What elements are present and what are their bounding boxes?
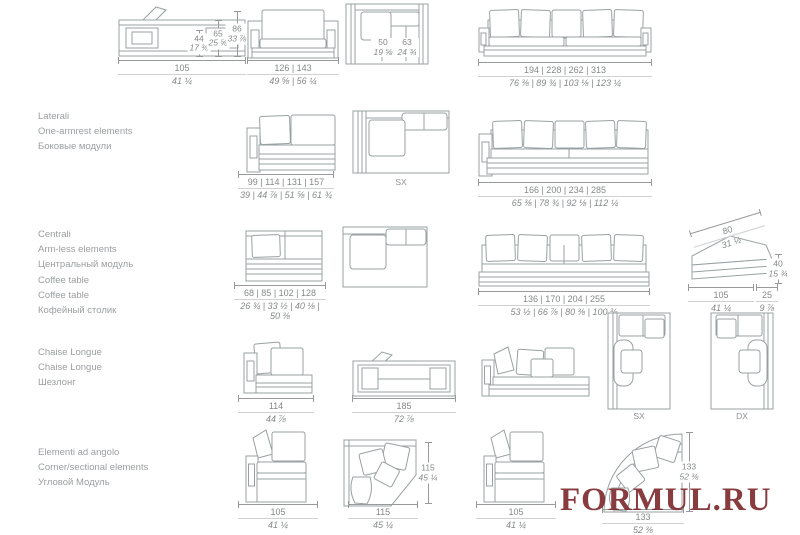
label-line: One-armrest elements (38, 124, 133, 139)
label-line: Coffee table (38, 288, 116, 303)
dim-coffee-table-depth: 25 9 ⅞ (756, 287, 778, 313)
plan-label-chaise-sx: SX (607, 411, 671, 421)
section-label-corner-elements: Elementi ad angolo Corner/sectional elem… (38, 445, 148, 490)
label-line: Elementi ad angolo (38, 445, 148, 460)
one-armrest-plan-sx-drawing (352, 110, 450, 174)
dim-plan-seat-depth: 5019 ⅝ (371, 38, 395, 57)
chaise-front-view-drawing (243, 341, 315, 395)
dim-coffee-table-height: 4015 ¾ (768, 254, 788, 284)
label-line: Corner/sectional elements (38, 460, 148, 475)
dim-plan-total-depth: 6324 ¾ (395, 38, 419, 57)
dim-sofa-widths: 194 | 228 | 262 | 313 76 ⅜ | 89 ¾ | 103 … (478, 62, 652, 88)
label-line: Laterali (38, 109, 133, 124)
dim-armchair-top-width: 105 41 ¼ (118, 60, 246, 86)
label-line: Кофейный столик (38, 303, 116, 318)
dim-corner-element-width-2: 105 41 ¼ (476, 504, 556, 530)
watermark: FORMUL.RU (560, 482, 772, 519)
label-line: Угловой Модуль (38, 475, 148, 490)
chaise-sofa-front-drawing (481, 344, 593, 398)
label-line: Centrali (38, 227, 133, 242)
dim-chaise-length: 185 72 ⅞ (352, 398, 456, 424)
corner-element-plan-drawing (343, 439, 417, 507)
dim-corner-element-width-1: 105 41 ¼ (238, 504, 318, 530)
dim-corner-plan-depth: 11545 ¼ (419, 442, 437, 504)
armless-plan-drawing (342, 226, 428, 288)
label-line: Боковые модули (38, 139, 133, 154)
chaise-plan-dx-drawing (710, 312, 774, 410)
armless-small-front-drawing (245, 229, 323, 283)
label-line: Шезлонг (38, 375, 102, 390)
corner-element-front-drawing (245, 426, 309, 504)
section-label-laterali: Laterali One-armrest elements Боковые мо… (38, 109, 133, 154)
plan-label-chaise-dx: DX (710, 411, 774, 421)
one-armrest-small-front-drawing (246, 112, 338, 174)
armchair-front-view-drawing (247, 8, 339, 60)
dim-armchair-back-height: 8633 ⅞ (226, 11, 248, 57)
dim-chaise-width: 114 44 ⅞ (238, 398, 314, 424)
corner-element-front-2-drawing (483, 426, 547, 504)
dim-one-armrest-large-widths: 166 | 200 | 234 | 285 65 ⅜ | 78 ¾ | 92 ⅛… (478, 182, 652, 208)
section-label-coffee-table: Coffee table Coffee table Кофейный столи… (38, 273, 116, 318)
dim-one-armrest-small-widths: 99 | 114 | 131 | 157 39 | 44 ⅞ | 51 ⅝ | … (238, 174, 334, 200)
dim-armless-small-widths: 68 | 85 | 102 | 128 26 ¾ | 33 ½ | 40 ⅛ |… (234, 285, 326, 321)
one-armrest-large-front-drawing (478, 118, 652, 178)
dim-coffee-table-width: 105 41 ¼ (688, 287, 754, 313)
chaise-top-view-drawing (352, 351, 456, 397)
plan-label-sx: SX (352, 177, 450, 187)
label-line: Центральный модуль (38, 257, 133, 272)
armless-large-front-drawing (478, 232, 650, 288)
dim-armchair-front-widths: 126 | 143 49 ⅝ | 56 ¼ (247, 60, 339, 86)
label-line: Chaise Longue (38, 345, 102, 360)
section-label-centrali: Centrali Arm-less elements Центральный м… (38, 227, 133, 272)
label-line: Arm-less elements (38, 242, 133, 257)
label-line: Coffee table (38, 273, 116, 288)
label-line: Chaise Longue (38, 360, 102, 375)
section-label-chaise-longue: Chaise Longue Chaise Longue Шезлонг (38, 345, 102, 390)
dim-corner-plan-width: 115 45 ¼ (348, 504, 418, 530)
chaise-plan-sx-drawing (607, 312, 671, 410)
sofa-front-view-drawing (478, 6, 652, 58)
